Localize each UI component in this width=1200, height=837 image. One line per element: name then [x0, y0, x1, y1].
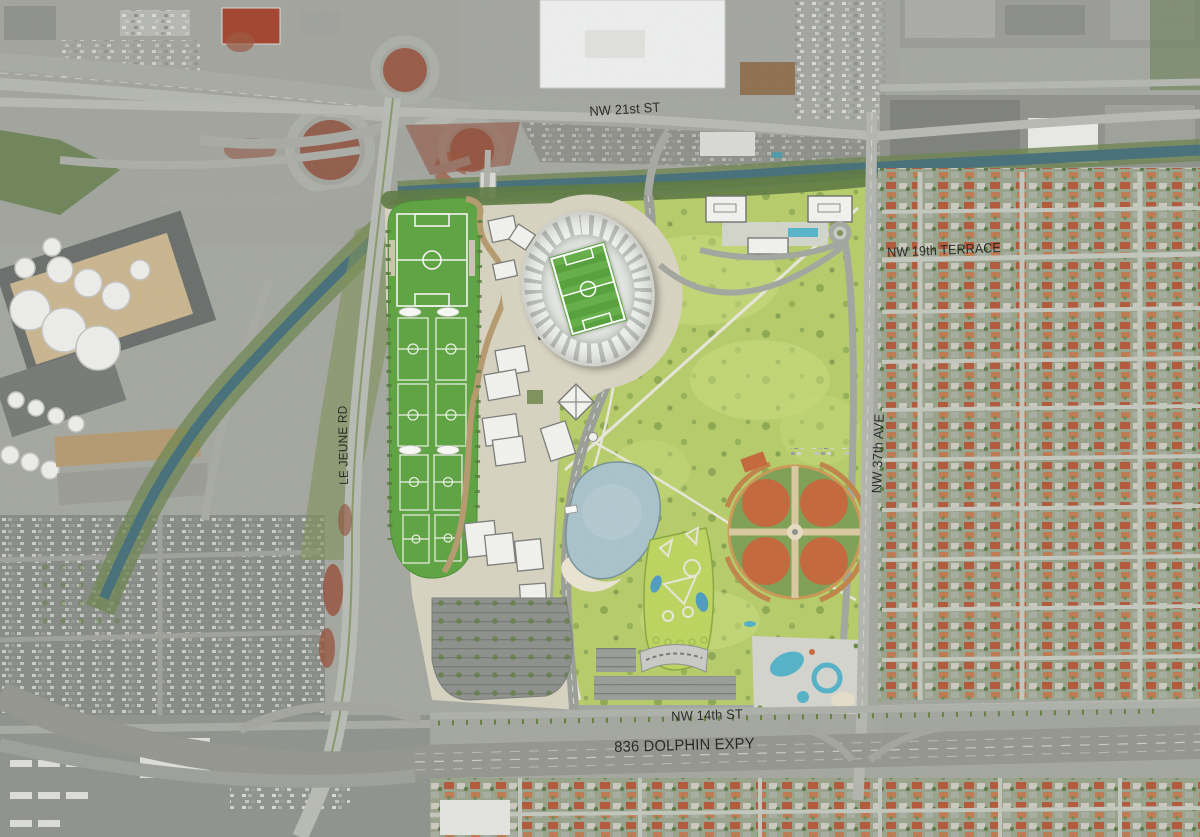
stadium-pitch [549, 242, 627, 337]
map-canvas [0, 0, 1200, 837]
street-label-le-jeune-rd: LE JEUNE RD [336, 405, 351, 485]
site-plan-map: NW 21st ST NW 19th TERRACE NW 37th AVE L… [0, 0, 1200, 837]
stadium-bowl [530, 225, 646, 353]
grain-overlay [0, 0, 1200, 837]
street-label-nw-14th-st: NW 14th ST [671, 706, 743, 723]
pitch-markings [549, 242, 627, 337]
street-label-nw-37th-ave: NW 37th AVE [869, 414, 887, 494]
street-label-836-dolphin-expy: 836 DOLPHIN EXPY [614, 735, 755, 757]
